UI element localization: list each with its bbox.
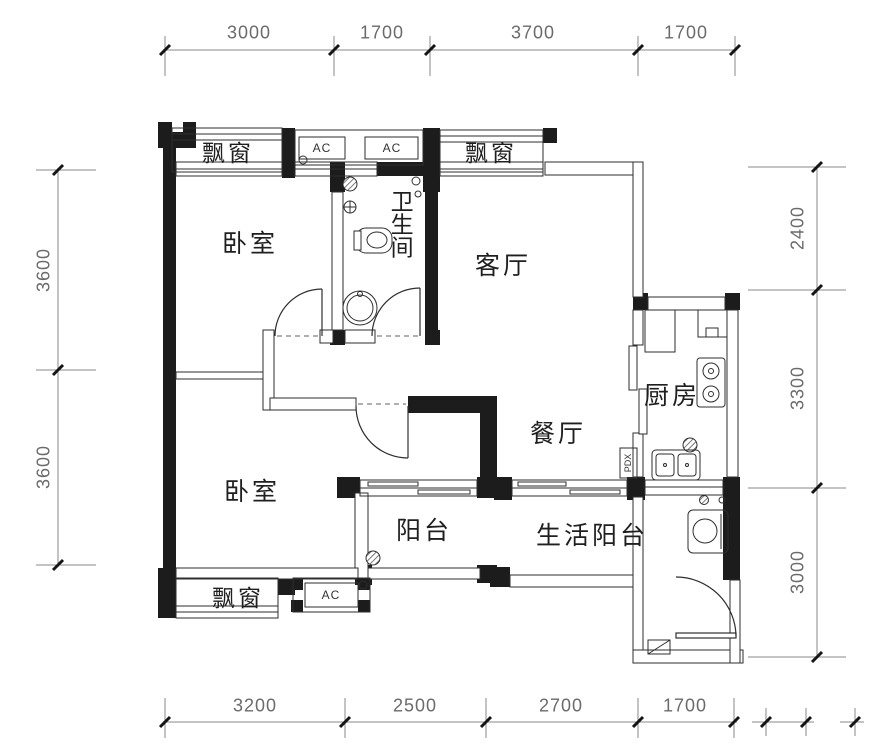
bedroom-bottom-door-arc: [356, 406, 408, 458]
room-label-living: 客厅: [475, 246, 531, 282]
dim-top-4: 1700: [664, 23, 708, 44]
dim-top-2: 1700: [360, 23, 404, 44]
dim-left-1: 3600: [34, 248, 55, 292]
bedroom-top-door-arc: [275, 289, 322, 336]
dim-right-1: 2400: [788, 206, 809, 250]
room-label-balcony: 阳台: [396, 511, 452, 547]
entry-door-leaf: [676, 633, 736, 638]
dim-top-3: 3700: [511, 23, 555, 44]
room-label-dining: 餐厅: [530, 414, 586, 450]
ac-platform-label: AC: [313, 141, 332, 155]
dim-bottom-2: 2500: [393, 696, 437, 717]
counter: [645, 310, 675, 352]
dim-right-3: 3000: [788, 550, 809, 594]
room-label-bedroom-top: 卧室: [222, 224, 278, 260]
ac-platform-label: AC: [383, 141, 402, 155]
stove-icon: [697, 358, 725, 407]
dim-right-2: 3300: [788, 366, 809, 410]
room-label-life-balcony: 生活阳台: [536, 516, 648, 552]
room-label-bedroom-bottom: 卧室: [224, 472, 280, 508]
dim-top-1: 3000: [227, 23, 271, 44]
ac-platform-label: AC: [322, 588, 341, 602]
floor-drain-icon: [343, 177, 357, 191]
dim-bottom-1: 3200: [233, 696, 277, 717]
corner-notch: [172, 122, 183, 132]
cabinet: [698, 310, 727, 337]
dim-bottom-4: 1700: [663, 696, 707, 717]
room-label-kitchen: 厨房: [644, 376, 700, 412]
bay-window-label: 飘窗: [465, 134, 517, 168]
floor-plan-drawing: [0, 0, 872, 753]
dim-bottom-3: 2700: [539, 696, 583, 717]
washing-machine-icon: [688, 510, 728, 553]
hinge-dot: [412, 177, 420, 185]
room-label-bathroom: 卫生间: [388, 190, 412, 259]
dim-left-2: 3600: [34, 445, 55, 489]
floor-plan-canvas: 卧室 卫生间 客厅 餐厅 厨房 卧室 阳台 生活阳台 飘窗 飘窗 飘窗 AC A…: [0, 0, 872, 753]
bathroom-door-arc: [372, 288, 420, 336]
floor-drain-icon: [366, 551, 380, 565]
bay-window-label: 飘窗: [212, 579, 264, 613]
bay-window-label: 飘窗: [202, 134, 254, 168]
hinge-dot: [415, 191, 421, 197]
faucet-icon: [700, 496, 709, 505]
entry-door-arc: [676, 577, 736, 636]
duct-label: PDX: [623, 454, 633, 473]
